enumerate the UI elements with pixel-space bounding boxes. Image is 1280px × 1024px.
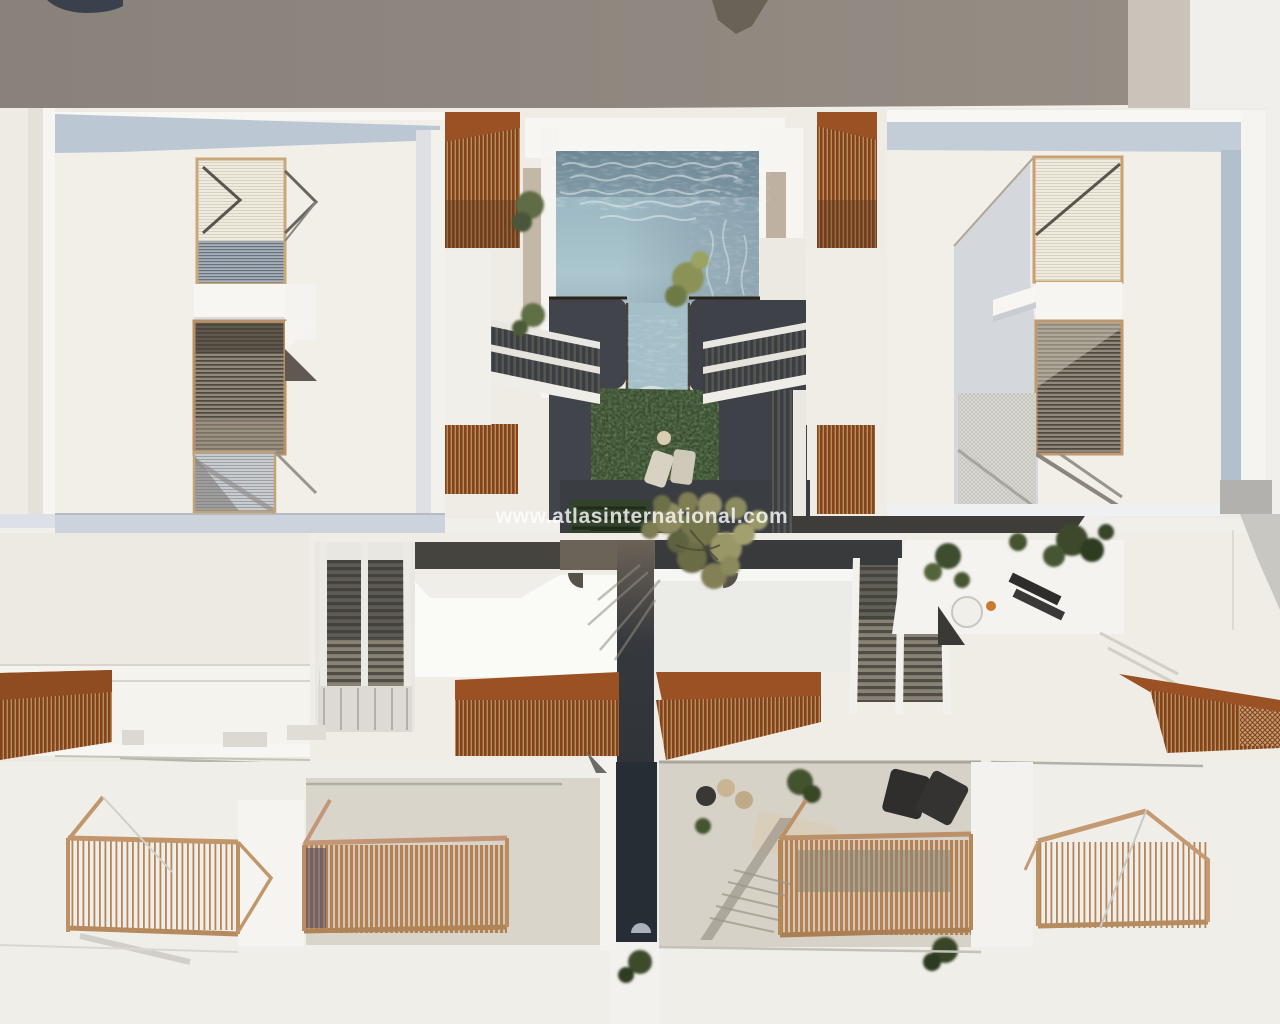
svg-text:www.atlasinternational.com: www.atlasinternational.com [495, 505, 789, 528]
